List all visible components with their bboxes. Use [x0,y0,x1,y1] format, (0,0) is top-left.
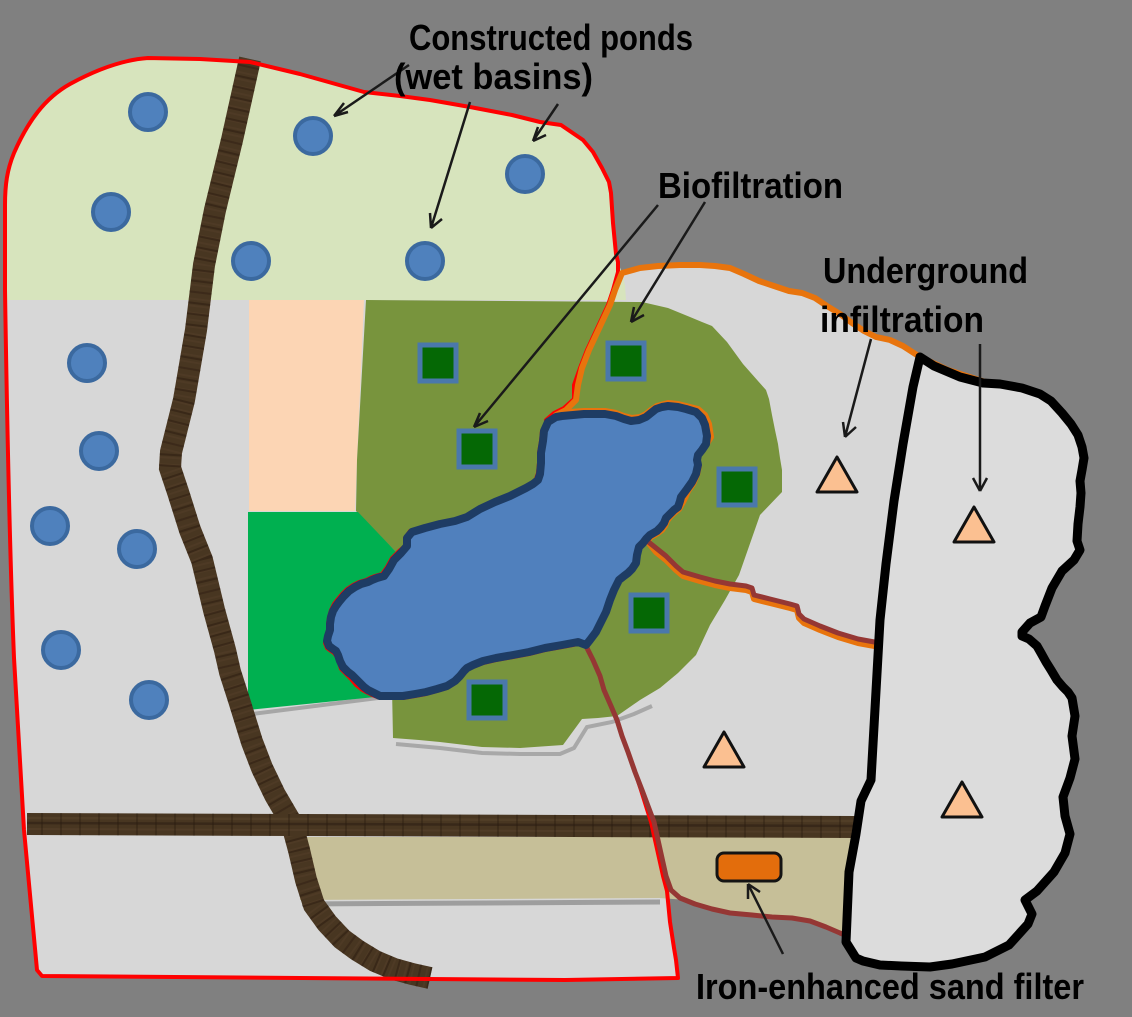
svg-text:Biofiltration: Biofiltration [658,165,843,206]
svg-text:infiltration: infiltration [820,299,984,340]
svg-text:Underground: Underground [823,250,1028,291]
svg-text:(wet basins): (wet basins) [394,56,593,97]
svg-text:Iron-enhanced sand filter: Iron-enhanced sand filter [696,966,1084,1007]
svg-text:Constructed ponds: Constructed ponds [409,17,693,58]
